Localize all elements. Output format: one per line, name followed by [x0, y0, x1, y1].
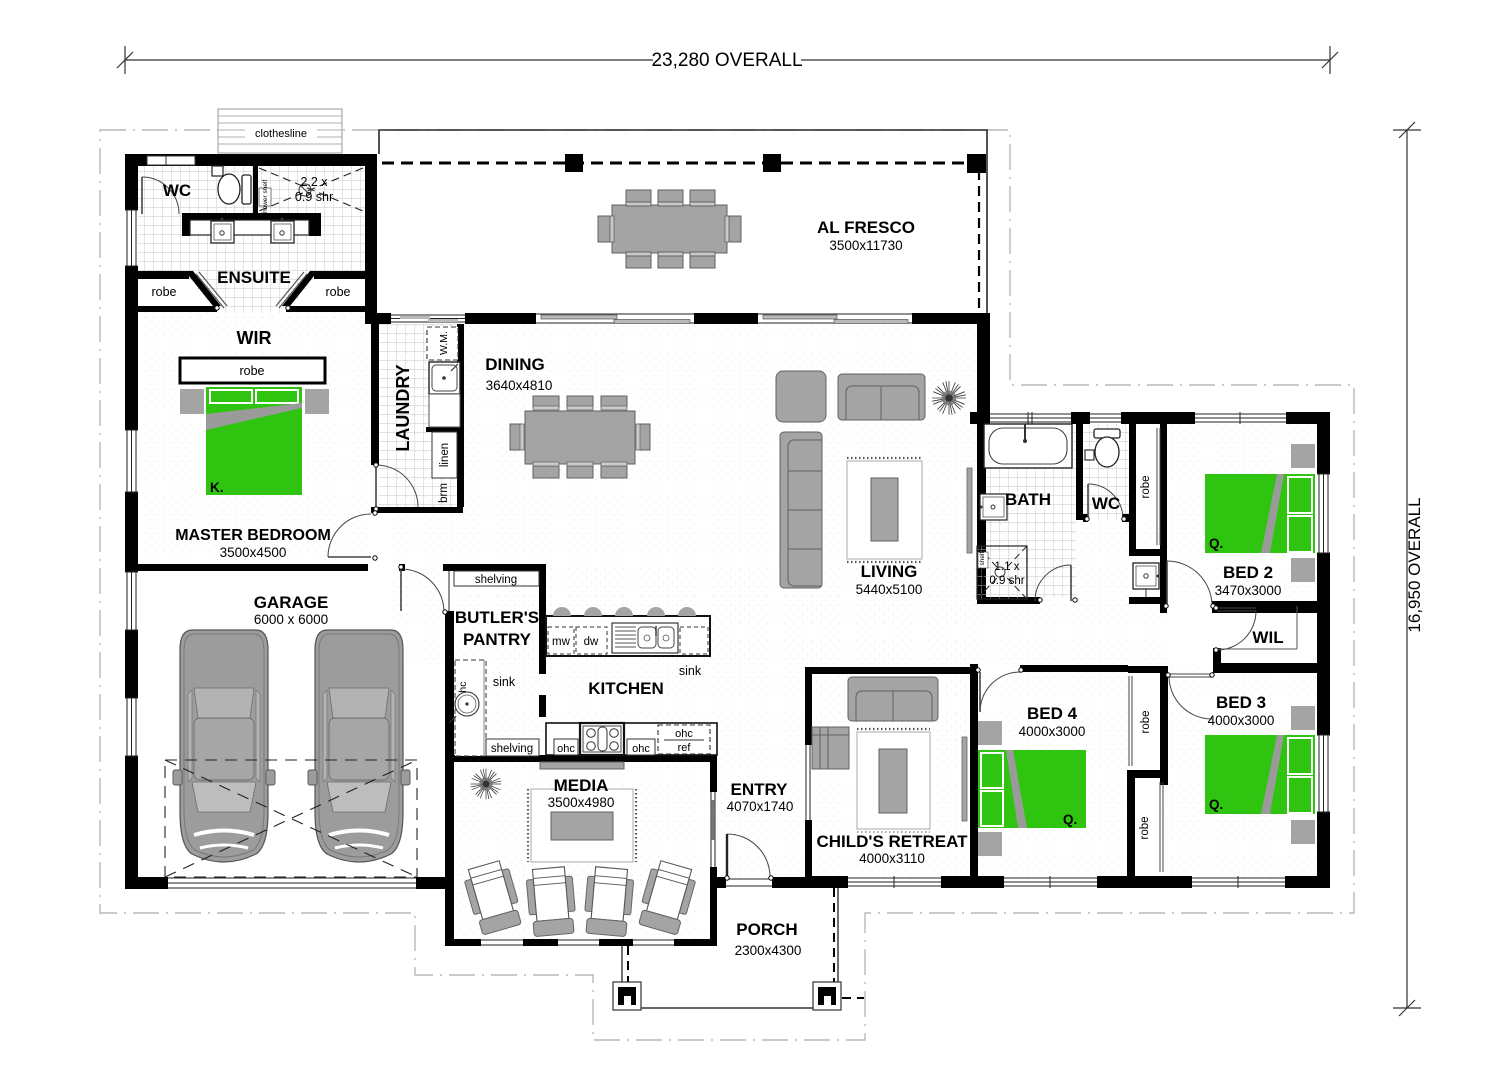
svg-text:LIVING: LIVING — [861, 562, 918, 581]
svg-text:mw: mw — [552, 636, 571, 648]
svg-text:ref: ref — [678, 742, 692, 754]
svg-text:ohc: ohc — [675, 728, 693, 740]
svg-text:sink: sink — [493, 675, 516, 689]
svg-text:WIL: WIL — [1252, 628, 1283, 647]
svg-text:WC: WC — [1092, 494, 1120, 513]
svg-text:16,950 OVERALL: 16,950 OVERALL — [1405, 497, 1424, 632]
svg-text:4000x3000: 4000x3000 — [1208, 713, 1275, 728]
svg-text:WIR: WIR — [237, 328, 272, 348]
svg-text:3500x11730: 3500x11730 — [829, 238, 902, 253]
svg-text:2300x4300: 2300x4300 — [735, 943, 802, 958]
svg-text:Q.: Q. — [1063, 812, 1077, 827]
svg-text:shower shelf: shower shelf — [262, 180, 269, 217]
svg-text:ENTRY: ENTRY — [731, 780, 789, 799]
svg-text:ohc: ohc — [632, 743, 650, 755]
svg-text:dw: dw — [584, 636, 599, 648]
svg-text:LAUNDRY: LAUNDRY — [393, 364, 413, 451]
svg-text:BED 2: BED 2 — [1223, 563, 1273, 582]
svg-text:4070x1740: 4070x1740 — [727, 799, 794, 814]
svg-text:robe: robe — [1140, 475, 1152, 498]
svg-text:3500x4980: 3500x4980 — [548, 795, 615, 810]
svg-text:ohc: ohc — [557, 743, 575, 755]
svg-text:shower shelf: shower shelf — [979, 552, 986, 589]
svg-text:BUTLER'S: BUTLER'S — [455, 608, 539, 627]
svg-text:KITCHEN: KITCHEN — [588, 679, 664, 698]
svg-text:robe: robe — [151, 285, 176, 299]
svg-text:K.: K. — [210, 480, 224, 495]
svg-text:BATH: BATH — [1005, 490, 1051, 509]
svg-text:clothesline: clothesline — [255, 128, 307, 140]
svg-text:PANTRY: PANTRY — [463, 630, 532, 649]
svg-text:robe: robe — [1140, 710, 1152, 733]
svg-text:robe: robe — [325, 285, 350, 299]
svg-text:linen: linen — [439, 443, 451, 467]
svg-text:W.M.: W.M. — [438, 331, 450, 355]
svg-text:1.1 x: 1.1 x — [995, 561, 1020, 573]
svg-text:ENSUITE: ENSUITE — [217, 268, 291, 287]
svg-text:Q.: Q. — [1209, 797, 1223, 812]
svg-text:3640x4810: 3640x4810 — [486, 378, 553, 393]
svg-text:GARAGE: GARAGE — [254, 593, 329, 612]
svg-text:2.2 x: 2.2 x — [300, 175, 328, 189]
svg-text:shelving: shelving — [475, 574, 517, 586]
svg-text:0.9 shr: 0.9 shr — [989, 575, 1024, 587]
svg-text:BED 4: BED 4 — [1027, 704, 1078, 723]
svg-text:23,280 OVERALL: 23,280 OVERALL — [651, 50, 802, 71]
svg-text:MASTER BEDROOM: MASTER BEDROOM — [175, 527, 331, 544]
svg-text:DINING: DINING — [485, 355, 545, 374]
svg-text:CHILD'S RETREAT: CHILD'S RETREAT — [816, 832, 968, 851]
svg-text:shelving: shelving — [491, 743, 533, 755]
svg-text:4000x3000: 4000x3000 — [1019, 724, 1086, 739]
svg-text:brm: brm — [438, 483, 450, 503]
svg-text:3470x3000: 3470x3000 — [1215, 583, 1282, 598]
svg-text:sink: sink — [679, 664, 702, 678]
svg-text:BED 3: BED 3 — [1216, 693, 1266, 712]
svg-text:3500x4500: 3500x4500 — [220, 545, 287, 560]
svg-text:robe: robe — [1139, 816, 1151, 839]
svg-text:MEDIA: MEDIA — [554, 776, 609, 795]
svg-text:PORCH: PORCH — [736, 920, 797, 939]
svg-text:AL FRESCO: AL FRESCO — [817, 218, 915, 237]
svg-text:4000x3110: 4000x3110 — [859, 851, 925, 866]
svg-text:6000 x 6000: 6000 x 6000 — [254, 612, 328, 627]
svg-text:Q.: Q. — [1209, 536, 1223, 551]
svg-text:5440x5100: 5440x5100 — [856, 582, 923, 597]
svg-text:WC: WC — [163, 181, 191, 200]
svg-text:0.9 shr: 0.9 shr — [295, 190, 333, 204]
svg-text:robe: robe — [239, 364, 264, 378]
